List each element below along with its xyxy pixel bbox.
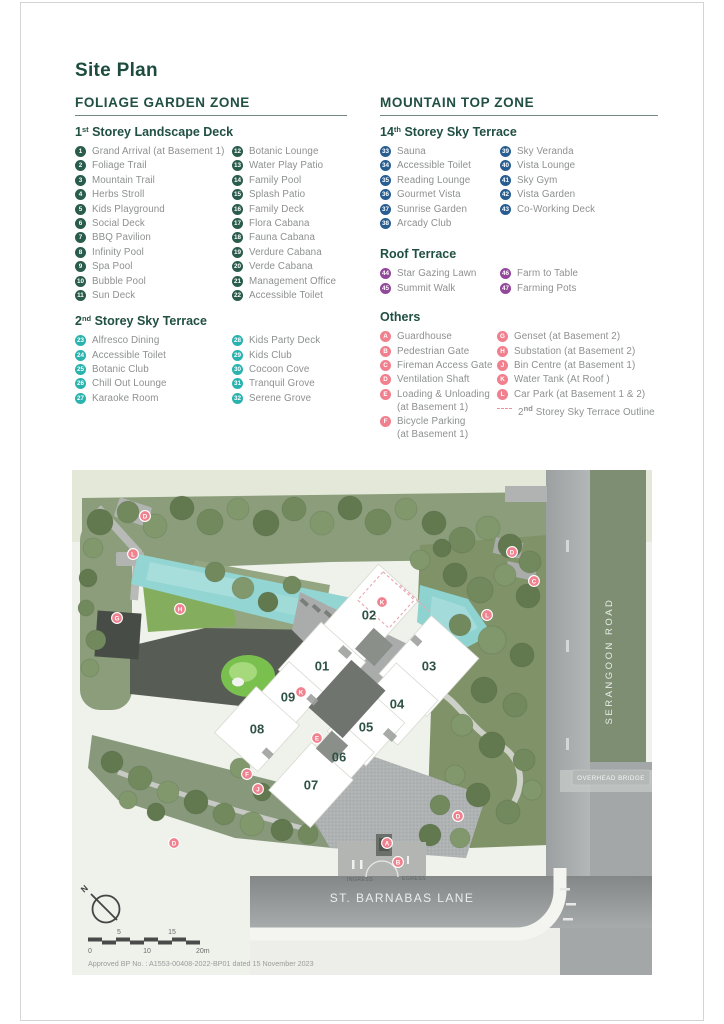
- site-plan-map: SERANGOON ROAD ST. BARNABAS LANE OVERHEA…: [0, 0, 724, 1024]
- tree-icon: [466, 783, 490, 807]
- tree-icon: [476, 516, 500, 540]
- tree-icon: [471, 677, 497, 703]
- tree-icon: [128, 766, 152, 790]
- tree-icon: [433, 539, 451, 557]
- tree-icon: [443, 563, 467, 587]
- tree-icon: [197, 509, 223, 535]
- tree-icon: [258, 592, 278, 612]
- tree-icon: [338, 496, 362, 520]
- map-marker-letter: L: [485, 612, 489, 619]
- tree-icon: [271, 819, 293, 841]
- tree-icon: [445, 765, 465, 785]
- tree-icon: [449, 527, 475, 553]
- map-marker-letter: E: [315, 735, 319, 742]
- map-marker-letter: B: [396, 859, 401, 866]
- building-number: 09: [281, 690, 295, 705]
- tree-icon: [240, 812, 264, 836]
- tree-icon: [205, 562, 225, 582]
- tree-icon: [513, 749, 535, 771]
- map-marker-letter: K: [380, 599, 385, 606]
- tree-icon: [496, 800, 520, 824]
- map-marker-letter: G: [115, 615, 120, 622]
- building-number: 06: [332, 750, 346, 765]
- building-number: 08: [250, 722, 264, 737]
- tree-icon: [78, 600, 94, 616]
- tree-icon: [450, 828, 470, 848]
- tree-icon: [283, 576, 301, 594]
- tree-icon: [449, 614, 471, 636]
- tree-icon: [184, 790, 208, 814]
- scale-tick: 0: [88, 948, 92, 955]
- building-number: 01: [315, 659, 329, 674]
- tree-icon: [494, 564, 516, 586]
- tree-icon: [478, 626, 506, 654]
- tree-icon: [298, 824, 318, 844]
- tree-icon: [516, 584, 540, 608]
- tree-icon: [86, 630, 106, 650]
- tree-icon: [87, 509, 113, 535]
- map-marker-letter: J: [256, 786, 260, 793]
- tree-icon: [101, 751, 123, 773]
- tree-icon: [522, 780, 542, 800]
- map-marker-letter: A: [385, 840, 390, 847]
- ingress-label: INGRESS: [347, 877, 373, 883]
- tree-icon: [467, 577, 493, 603]
- tree-icon: [79, 569, 97, 587]
- tree-icon: [519, 551, 541, 573]
- map-marker-letter: C: [532, 578, 537, 585]
- scale-tick: 15: [168, 929, 176, 936]
- tree-icon: [365, 509, 391, 535]
- tree-icon: [451, 714, 473, 736]
- tree-icon: [147, 803, 165, 821]
- map-marker-letter: D: [510, 549, 515, 556]
- st-barnabas-lane-label: ST. BARNABAS LANE: [330, 891, 475, 905]
- tree-icon: [310, 511, 334, 535]
- tree-icon: [227, 498, 249, 520]
- egress-label: EGRESS: [402, 876, 426, 882]
- scale-tick: 20m: [196, 948, 210, 955]
- tree-icon: [503, 693, 527, 717]
- tree-icon: [170, 496, 194, 520]
- tree-icon: [510, 643, 534, 667]
- tree-icon: [81, 659, 99, 677]
- overhead-bridge: OVERHEAD BRIDGE: [560, 770, 652, 792]
- overhead-bridge-label: OVERHEAD BRIDGE: [577, 775, 645, 782]
- map-marker-letter: K: [299, 689, 304, 696]
- building-number: 02: [362, 608, 376, 623]
- tree-icon: [282, 497, 306, 521]
- approval-note: Approved BP No. : A1553-00408-2022-BP01 …: [88, 959, 314, 968]
- tree-icon: [119, 791, 137, 809]
- map-marker-letter: L: [131, 551, 135, 558]
- tree-icon: [232, 577, 254, 599]
- map-marker-letter: F: [245, 771, 249, 778]
- tree-icon: [213, 803, 235, 825]
- tree-icon: [410, 550, 430, 570]
- map-marker-letter: D: [456, 813, 461, 820]
- map-marker-letter: D: [172, 840, 177, 847]
- tree-icon: [117, 501, 139, 523]
- map-marker-letter: H: [178, 606, 183, 613]
- tree-icon: [479, 732, 505, 758]
- tree-icon: [83, 538, 103, 558]
- serangoon-road-label: SERANGOON ROAD: [604, 598, 615, 725]
- tree-icon: [422, 511, 446, 535]
- map-marker-letter: D: [143, 513, 148, 520]
- building-number: 04: [390, 697, 405, 712]
- scale-tick: 10: [143, 948, 151, 955]
- scale-tick: 5: [117, 929, 121, 936]
- tree-icon: [430, 795, 450, 815]
- tree-icon: [157, 781, 179, 803]
- building-number: 05: [359, 720, 373, 735]
- building-number: 07: [304, 778, 318, 793]
- tree-icon: [253, 510, 279, 536]
- building-number: 03: [422, 659, 436, 674]
- tree-icon: [395, 498, 417, 520]
